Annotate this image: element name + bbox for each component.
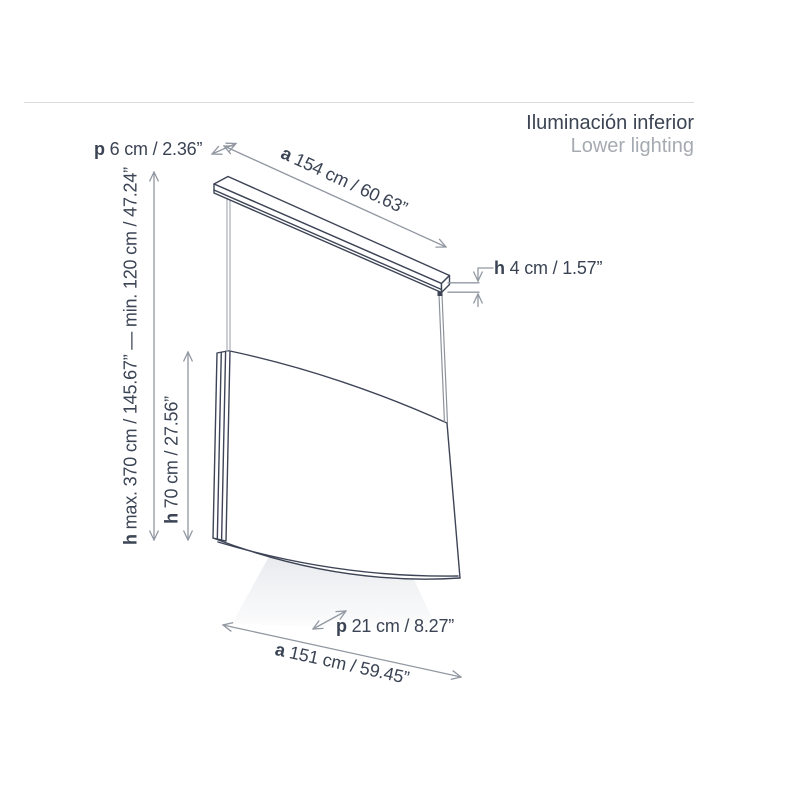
dimension-prefix: p (94, 139, 105, 159)
dimension-value: max. 370 cm / 145.67” — min. 120 cm / 47… (121, 167, 141, 534)
product-dimension-diagram: Iluminación inferior Lower lighting (0, 0, 799, 802)
dim-leader-height-bar (478, 268, 493, 281)
dimension-label-depth-top: p 6 cm / 2.36” (94, 139, 202, 160)
dimension-prefix: h (162, 513, 182, 524)
dimension-prefix: p (336, 616, 347, 636)
dimension-prefix: h (121, 534, 141, 545)
dimension-value: 6 cm / 2.36” (105, 139, 202, 159)
shade (213, 351, 460, 580)
dimension-value: 4 cm / 1.57” (505, 258, 602, 278)
dimension-value: 70 cm / 27.56” (162, 396, 182, 513)
dimension-label-height-suspension: h max. 370 cm / 145.67” — min. 120 cm / … (121, 167, 142, 545)
dimension-label-height-shade: h 70 cm / 27.56” (162, 396, 183, 524)
dimension-prefix: h (494, 258, 505, 278)
dimension-value: 21 cm / 8.27” (347, 616, 454, 636)
canopy-bar (214, 177, 450, 293)
dimension-label-height-bar: h 4 cm / 1.57” (494, 258, 602, 279)
dimension-label-depth-bottom: p 21 cm / 8.27” (336, 616, 454, 637)
dim-arrow-depth-top (212, 144, 236, 155)
